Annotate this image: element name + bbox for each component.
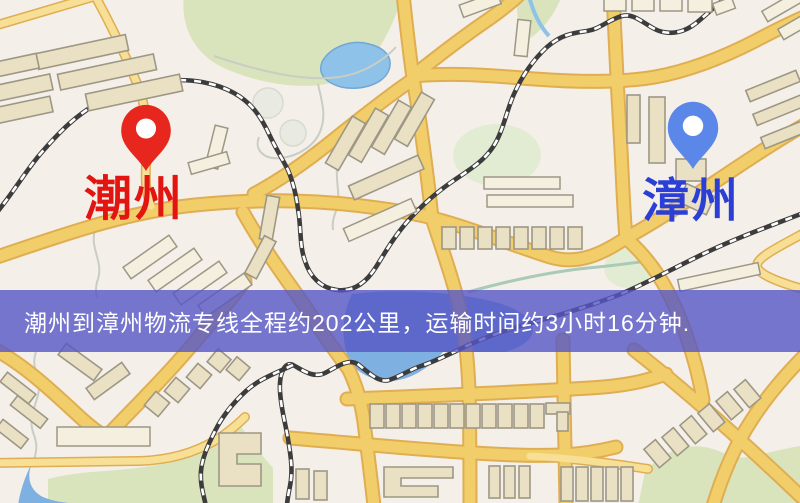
route-info-banner: 潮州到漳州物流专线全程约202公里，运输时间约3小时16分钟. <box>0 290 800 352</box>
base-map <box>0 0 800 503</box>
map-view: 潮州 漳州 潮州到漳州物流专线全程约202公里，运输时间约3小时16分钟. <box>0 0 800 503</box>
route-info-text: 潮州到漳州物流专线全程约202公里，运输时间约3小时16分钟. <box>24 304 690 338</box>
origin-city-label: 潮州 <box>84 176 184 224</box>
destination-city-label: 漳州 <box>642 177 740 224</box>
